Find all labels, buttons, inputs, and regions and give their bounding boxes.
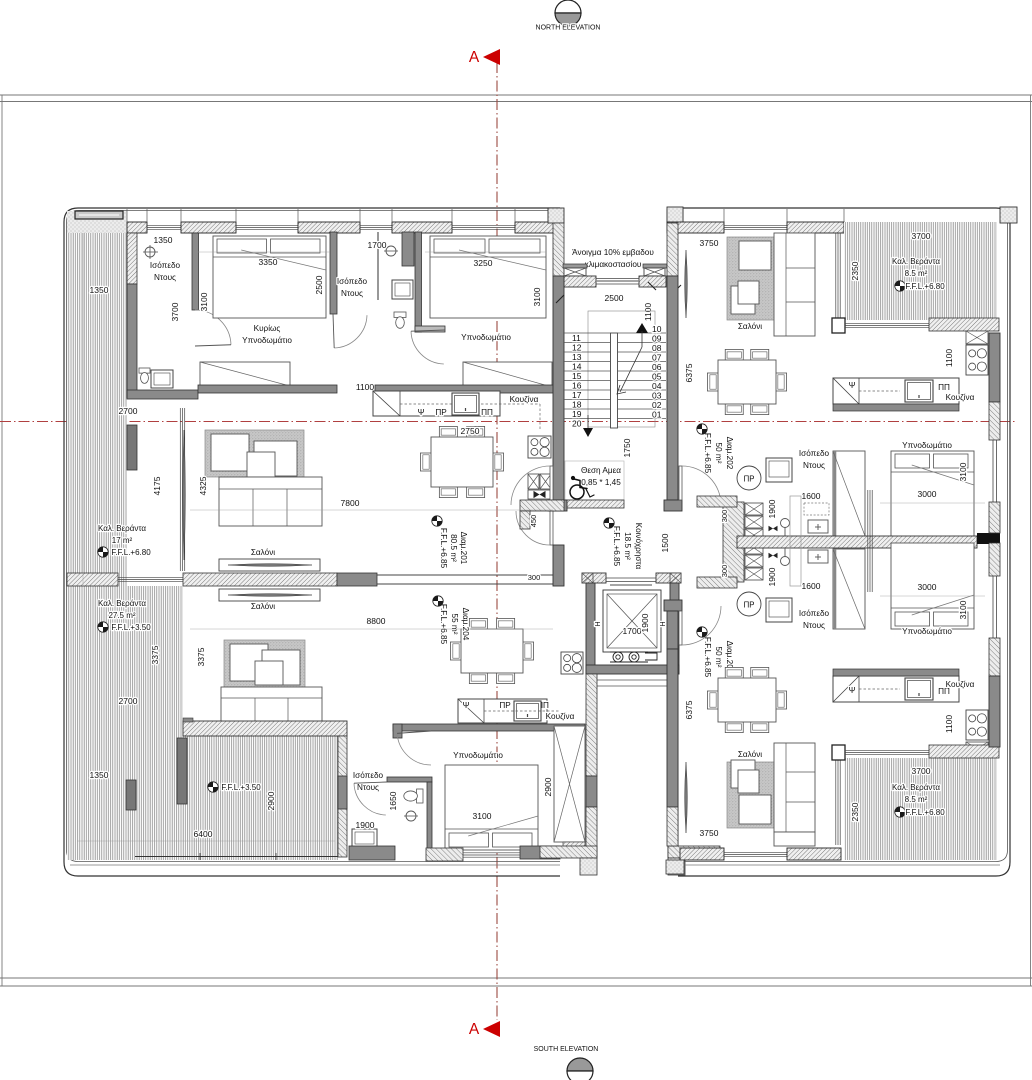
svg-text:2350: 2350	[850, 802, 860, 821]
svg-text:1900: 1900	[640, 613, 650, 632]
svg-text:Καλ. Βεράντα: Καλ. Βεράντα	[892, 257, 940, 266]
svg-text:1100: 1100	[944, 715, 954, 734]
svg-text:1700: 1700	[368, 240, 387, 250]
svg-text:Ισόπεδο: Ισόπεδο	[799, 609, 830, 618]
svg-text:Ψ: Ψ	[849, 686, 856, 695]
svg-text:3100: 3100	[958, 462, 968, 481]
svg-text:2900: 2900	[266, 791, 276, 810]
svg-text:3000: 3000	[918, 489, 937, 499]
svg-text:ΠΠ: ΠΠ	[938, 383, 950, 392]
svg-text:08: 08	[652, 343, 662, 353]
svg-text:06: 06	[652, 362, 662, 372]
svg-text:NORTH ELEVATION: NORTH ELEVATION	[536, 25, 601, 32]
svg-text:17: 17	[572, 390, 582, 400]
svg-text:3750: 3750	[700, 238, 719, 248]
svg-text:H: H	[660, 621, 667, 626]
svg-text:Ισόπεδο: Ισόπεδο	[799, 449, 830, 458]
svg-text:3700: 3700	[912, 231, 931, 241]
svg-text:1600: 1600	[802, 491, 821, 501]
svg-text:1900: 1900	[356, 820, 375, 830]
svg-text:1350: 1350	[90, 770, 109, 780]
svg-text:3700: 3700	[912, 766, 931, 776]
svg-text:1350: 1350	[154, 235, 173, 245]
svg-text:13: 13	[572, 352, 582, 362]
svg-text:19: 19	[572, 409, 582, 419]
svg-text:F.F.L.+3.50: F.F.L.+3.50	[111, 623, 151, 632]
svg-text:1500: 1500	[660, 533, 670, 552]
svg-text:1350: 1350	[90, 285, 109, 295]
svg-text:3000: 3000	[918, 582, 937, 592]
svg-text:16: 16	[572, 381, 582, 391]
svg-text:1100: 1100	[356, 382, 375, 392]
svg-text:1900: 1900	[767, 567, 777, 586]
svg-text:Κοινόχρηστα: Κοινόχρηστα	[634, 523, 643, 570]
svg-text:2750: 2750	[461, 426, 480, 436]
svg-text:3100: 3100	[473, 811, 492, 821]
svg-text:Ντους: Ντους	[154, 273, 176, 282]
svg-text:05: 05	[652, 372, 662, 382]
svg-text:300: 300	[720, 565, 729, 578]
svg-text:300: 300	[528, 573, 541, 582]
svg-text:2900: 2900	[543, 777, 553, 796]
svg-text:3375: 3375	[196, 647, 206, 666]
svg-text:50 m²: 50 m²	[714, 647, 723, 668]
svg-text:Άνοιγμα 10% εμβαδου: Άνοιγμα 10% εμβαδου	[572, 248, 654, 257]
svg-text:4175: 4175	[152, 476, 162, 495]
svg-text:6375: 6375	[684, 700, 694, 719]
svg-text:F.F.L.+6.85: F.F.L.+6.85	[439, 528, 448, 569]
svg-text:Σαλόνι: Σαλόνι	[738, 322, 762, 331]
svg-text:1650: 1650	[388, 791, 398, 810]
svg-text:12: 12	[572, 343, 582, 353]
svg-text:Ντους: Ντους	[357, 783, 379, 792]
svg-text:Υπνοδωμάτιο: Υπνοδωμάτιο	[242, 336, 292, 345]
svg-text:2700: 2700	[119, 406, 138, 416]
svg-text:2350: 2350	[850, 261, 860, 280]
svg-text:18: 18	[572, 400, 582, 410]
svg-text:Ντους: Ντους	[803, 461, 825, 470]
svg-text:ΠΡ: ΠΡ	[744, 475, 755, 484]
svg-text:27.5 m²: 27.5 m²	[108, 611, 135, 620]
svg-text:Ψ: Ψ	[418, 408, 425, 417]
svg-text:F.F.L.+3.50: F.F.L.+3.50	[221, 783, 261, 792]
svg-text:2700: 2700	[119, 696, 138, 706]
svg-text:F.F.L.+6.85: F.F.L.+6.85	[439, 604, 448, 645]
svg-text:20: 20	[572, 419, 582, 429]
svg-text:10: 10	[652, 324, 662, 334]
svg-text:2500: 2500	[314, 275, 324, 294]
svg-text:1100: 1100	[944, 349, 954, 368]
svg-text:F.F.L.+6.85: F.F.L.+6.85	[612, 526, 621, 567]
svg-text:ΠΠ: ΠΠ	[481, 408, 493, 417]
svg-text:Υπνοδωμάτιο: Υπνοδωμάτιο	[453, 751, 503, 760]
svg-text:50 m²: 50 m²	[714, 443, 723, 464]
svg-text:κλιμακοστασίου: κλιμακοστασίου	[585, 260, 642, 269]
svg-text:ΠΡ: ΠΡ	[499, 701, 511, 710]
svg-text:Θεση Αμεα: Θεση Αμεα	[581, 466, 621, 475]
svg-text:11: 11	[572, 333, 581, 343]
svg-text:1750: 1750	[622, 438, 632, 457]
svg-text:Σαλόνι: Σαλόνι	[251, 602, 275, 611]
svg-text:14: 14	[572, 362, 582, 372]
svg-text:04: 04	[652, 381, 662, 391]
svg-text:1600: 1600	[802, 581, 821, 591]
svg-text:A: A	[469, 1021, 480, 1038]
svg-text:3100: 3100	[958, 600, 968, 619]
svg-text:3700: 3700	[170, 302, 180, 321]
svg-text:3375: 3375	[150, 645, 160, 664]
svg-text:Καλ. Βεράντα: Καλ. Βεράντα	[892, 783, 940, 792]
svg-text:01: 01	[652, 410, 662, 420]
svg-text:8.5 m²: 8.5 m²	[905, 795, 928, 804]
svg-text:Διαμ.202: Διαμ.202	[725, 437, 734, 470]
svg-text:1700: 1700	[623, 626, 642, 636]
svg-text:02: 02	[652, 400, 662, 410]
svg-text:Υπνοδωμάτιο: Υπνοδωμάτιο	[902, 627, 952, 636]
svg-text:3350: 3350	[259, 257, 278, 267]
svg-text:ΠΡ: ΠΡ	[435, 408, 447, 417]
svg-text:55 m²: 55 m²	[450, 614, 459, 635]
svg-text:3100: 3100	[199, 292, 209, 311]
svg-text:80.5 m²: 80.5 m²	[449, 534, 458, 562]
svg-text:300: 300	[720, 510, 729, 523]
svg-text:18.5 m²: 18.5 m²	[623, 532, 632, 560]
svg-text:Υπνοδωμάτιο: Υπνοδωμάτιο	[461, 333, 511, 342]
svg-text:450: 450	[529, 515, 538, 528]
svg-text:3250: 3250	[474, 258, 493, 268]
svg-text:0,85 * 1,45: 0,85 * 1,45	[581, 478, 621, 487]
svg-text:F.F.L.+6.85: F.F.L.+6.85	[703, 637, 712, 678]
svg-text:Καλ. Βεράντα: Καλ. Βεράντα	[98, 524, 146, 533]
svg-text:8800: 8800	[367, 616, 386, 626]
svg-text:Ισόπεδο: Ισόπεδο	[150, 261, 181, 270]
svg-text:Ντους: Ντους	[341, 289, 363, 298]
svg-text:17 m²: 17 m²	[112, 536, 133, 545]
svg-text:7800: 7800	[341, 498, 360, 508]
svg-text:15: 15	[572, 371, 582, 381]
svg-text:Υπνοδωμάτιο: Υπνοδωμάτιο	[902, 441, 952, 450]
svg-text:Διαμ.201: Διαμ.201	[459, 532, 468, 565]
svg-text:3750: 3750	[700, 828, 719, 838]
svg-text:6400: 6400	[194, 829, 213, 839]
svg-text:3100: 3100	[532, 287, 542, 306]
svg-text:8.5 m²: 8.5 m²	[905, 269, 928, 278]
svg-text:A: A	[469, 49, 480, 66]
svg-text:07: 07	[652, 353, 662, 363]
svg-text:Ισόπεδο: Ισόπεδο	[337, 277, 368, 286]
svg-text:09: 09	[652, 334, 662, 344]
svg-text:4325: 4325	[198, 476, 208, 495]
svg-text:ΠΡ: ΠΡ	[744, 601, 755, 610]
svg-text:H: H	[595, 621, 602, 626]
svg-text:Ψ: Ψ	[849, 381, 856, 390]
svg-text:Κουζίνα: Κουζίνα	[546, 712, 575, 721]
svg-text:Κουζίνα: Κουζίνα	[510, 395, 539, 404]
svg-text:F.F.L.+6.80: F.F.L.+6.80	[905, 282, 945, 291]
svg-text:Κουζίνα: Κουζίνα	[946, 680, 975, 689]
svg-text:Σαλόνι: Σαλόνι	[738, 750, 762, 759]
svg-text:SOUTH ELEVATION: SOUTH ELEVATION	[534, 1046, 599, 1053]
svg-text:03: 03	[652, 391, 662, 401]
svg-text:Ισόπεδο: Ισόπεδο	[353, 771, 384, 780]
svg-text:1900: 1900	[767, 499, 777, 518]
svg-text:F.F.L.+6.80: F.F.L.+6.80	[111, 548, 151, 557]
svg-text:2500: 2500	[605, 293, 624, 303]
svg-text:1100: 1100	[643, 303, 653, 322]
svg-text:Ντους: Ντους	[803, 621, 825, 630]
svg-text:Σαλόνι: Σαλόνι	[251, 548, 275, 557]
svg-text:F.F.L.+6.85: F.F.L.+6.85	[703, 433, 712, 474]
svg-text:Ψ: Ψ	[463, 701, 470, 710]
svg-text:Καλ. Βεράντα: Καλ. Βεράντα	[98, 599, 146, 608]
svg-text:Κουζίνα: Κουζίνα	[946, 393, 975, 402]
svg-text:F.F.L.+6.80: F.F.L.+6.80	[905, 808, 945, 817]
svg-text:6375: 6375	[684, 363, 694, 382]
svg-text:Κυρίως: Κυρίως	[254, 324, 281, 333]
svg-text:Διαμ.204: Διαμ.204	[461, 608, 470, 641]
